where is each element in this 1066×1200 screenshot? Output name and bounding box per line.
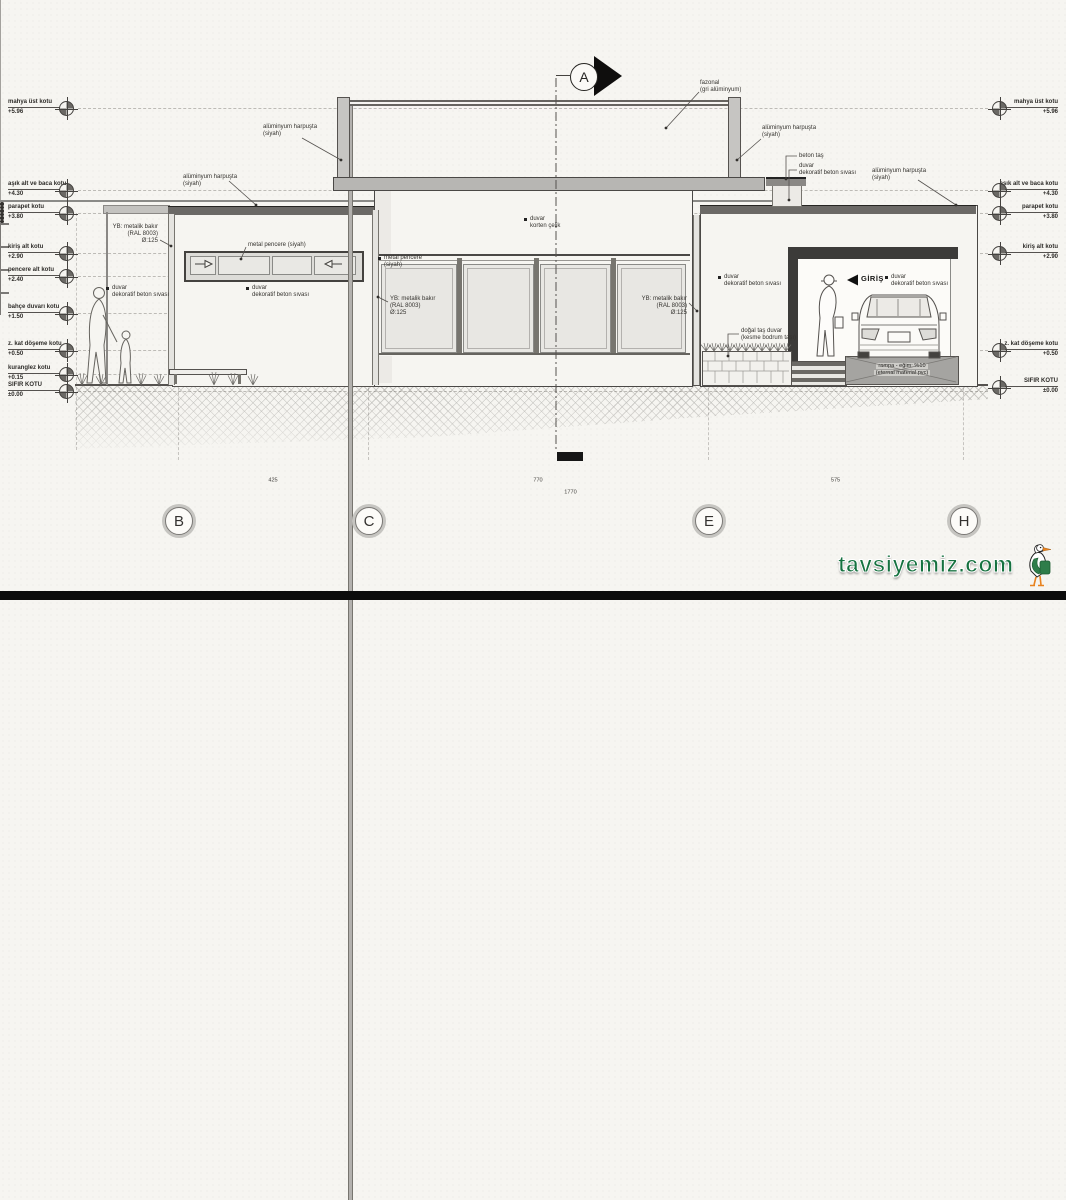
left-building-roof-band xyxy=(168,206,376,215)
annotation-label: duvardekoratif beton sıvası xyxy=(891,274,948,288)
level-value: +2.90 xyxy=(1043,254,1058,261)
level-label: aşık alt ve baca kotu xyxy=(1000,181,1058,188)
level-symbol-icon xyxy=(992,246,1007,261)
railing-baluster xyxy=(348,874,353,938)
grid-bubble: H xyxy=(950,507,978,535)
window-sill xyxy=(375,353,690,355)
level-marker: pencere alt kotu+2.40 xyxy=(8,267,120,287)
dim-extension-line xyxy=(0,0,1,50)
mullion xyxy=(534,258,539,354)
grid-bubble-label: C xyxy=(364,513,375,530)
person-child xyxy=(119,331,131,383)
grid-bubble-tick xyxy=(0,248,1,259)
level-label: parapet kotu xyxy=(8,204,44,211)
level-symbol-icon xyxy=(992,380,1007,395)
level-symbol-icon xyxy=(59,384,74,399)
level-label: pencere alt kotu xyxy=(8,267,54,274)
dim-text: 575 xyxy=(829,478,842,484)
railing-baluster xyxy=(348,1066,353,1130)
bench-seat xyxy=(169,369,247,375)
window-pane xyxy=(272,256,312,275)
bullet-icon xyxy=(378,257,381,260)
dim-tick-dot xyxy=(0,209,4,213)
level-value: +3.80 xyxy=(8,214,23,221)
dim-extension-line xyxy=(0,150,1,200)
level-marker: z. kat döşeme kotu+0.50 xyxy=(8,341,120,361)
chimney-cap xyxy=(766,177,806,186)
bullet-icon xyxy=(106,287,109,290)
bottom-bar xyxy=(0,591,1066,600)
level-line xyxy=(1005,386,1058,387)
dim-tick-dot xyxy=(0,202,4,206)
annotation-label: alüminyum harpuşta(siyah) xyxy=(762,125,816,139)
level-marker: aşık alt ve baca kotu+4.30 xyxy=(946,181,1058,201)
level-marker: z. kat döşeme kotu+0.50 xyxy=(946,341,1058,361)
level-symbol-icon xyxy=(59,269,74,284)
level-line xyxy=(1005,212,1058,213)
level-line xyxy=(8,373,60,374)
level-marker: kiriş alt kotu+2.90 xyxy=(8,244,120,264)
stone-wall xyxy=(702,351,792,386)
mullion xyxy=(457,258,462,354)
grid-bubble-tick xyxy=(0,259,1,269)
level-line xyxy=(8,252,60,253)
level-value: +4.30 xyxy=(1043,191,1058,198)
annotation-label: alüminyum harpuşta(siyah) xyxy=(183,174,237,188)
grid-bubble-tick xyxy=(0,271,1,282)
ramp-label: rampa - eğim: %10 (eternal material pvc) xyxy=(846,363,958,377)
level-value: +4.30 xyxy=(8,191,23,198)
annotation-label: YB: metalik bakır(RAL 8003)Ø:125 xyxy=(642,296,687,317)
level-line xyxy=(8,390,60,391)
left-downpipe xyxy=(168,214,175,385)
level-symbol-icon xyxy=(992,343,1007,358)
railing-baluster xyxy=(348,1194,353,1200)
level-label: SIFIR KOTU xyxy=(8,382,42,389)
grid-bubble-label: E xyxy=(704,513,714,530)
glass-pane xyxy=(463,264,534,353)
annotation-label: duvardekoratif beton sıvası xyxy=(252,285,309,299)
railing-baluster xyxy=(348,1002,353,1066)
level-symbol-icon xyxy=(59,206,74,221)
annotation-label: fazonal(gri alüminyum) xyxy=(700,80,741,94)
window-pane xyxy=(218,256,270,275)
railing-baluster xyxy=(348,746,353,810)
drawing-sheet: GİRİŞ rampa - eğim: %10 (eternal materia… xyxy=(0,0,1066,600)
railing-baluster xyxy=(348,426,353,490)
level-value: +2.90 xyxy=(8,254,23,261)
level-label: SIFIR KOTU xyxy=(1024,378,1058,385)
level-line xyxy=(1005,252,1058,253)
grid-bubble-label: B xyxy=(174,513,184,530)
section-arrow-icon xyxy=(594,56,622,96)
bullet-icon xyxy=(524,218,527,221)
window-pane xyxy=(190,256,216,275)
bench-leg xyxy=(174,374,177,384)
mullion xyxy=(611,258,616,354)
railing-baluster xyxy=(348,938,353,1002)
level-symbol-icon xyxy=(992,183,1007,198)
garage-entry-label: GİRİŞ xyxy=(861,274,884,283)
railing-balusters xyxy=(348,106,728,170)
dim-tick-dot xyxy=(0,216,4,220)
annotation-label: duvardekoratif beton sıvası xyxy=(724,274,781,288)
level-value: ±0.00 xyxy=(8,392,23,399)
level-value: +3.80 xyxy=(1043,214,1058,221)
dim-text: 770 xyxy=(531,478,544,484)
level-label: parapet kotu xyxy=(1022,204,1058,211)
level-value: +1.50 xyxy=(8,314,23,321)
level-symbol-icon xyxy=(59,246,74,261)
garage-ramp: rampa - eğim: %10 (eternal material pvc) xyxy=(845,356,959,385)
annotation-label: metal pencere(siyah) xyxy=(384,255,422,269)
grid-bubble-label: H xyxy=(959,513,970,530)
level-label: aşık alt ve baca kotu xyxy=(8,181,66,188)
chimney-body xyxy=(772,184,802,207)
railing-baluster xyxy=(348,810,353,874)
level-line xyxy=(1005,349,1058,350)
level-value: +2.40 xyxy=(8,277,23,284)
railing-baluster xyxy=(348,490,353,554)
railing-baluster xyxy=(348,1130,353,1194)
railing-baluster xyxy=(348,682,353,746)
dim-extension-line xyxy=(0,100,1,150)
grid-bubble-tick xyxy=(0,305,1,315)
level-label: kuranglez kotu xyxy=(8,365,50,372)
level-marker: kiriş alt kotu+2.90 xyxy=(946,244,1058,264)
dim-text: 425 xyxy=(266,478,279,484)
level-marker: SIFIR KOTU±0.00 xyxy=(946,378,1058,398)
level-value: ±0.00 xyxy=(1043,388,1058,395)
grid-bubble: B xyxy=(165,507,193,535)
grid-bubble-tick xyxy=(0,293,9,294)
bullet-icon xyxy=(885,276,888,279)
garage-header xyxy=(788,247,958,259)
section-cut-mark xyxy=(557,452,583,461)
level-marker: parapet kotu+3.80 xyxy=(8,204,120,224)
annotation-label: YB: metalik bakır(RAL 8003)Ø:125 xyxy=(113,224,158,245)
annotation-label: metal pencere (siyah) xyxy=(248,242,306,249)
level-line xyxy=(1005,189,1058,190)
bullet-icon xyxy=(718,276,721,279)
level-symbol-icon xyxy=(992,206,1007,221)
railing-baluster xyxy=(348,234,353,298)
grid-bubble-tick xyxy=(0,282,1,292)
grid-bubble-tick xyxy=(0,294,1,305)
level-value: +5.96 xyxy=(1043,109,1058,116)
grid-bubble-tick xyxy=(0,225,1,236)
grid-bubble-tick xyxy=(0,224,9,225)
level-line xyxy=(8,275,60,276)
railing-baluster xyxy=(348,618,353,682)
right-building-roof-band xyxy=(700,205,976,214)
level-line xyxy=(1005,107,1058,108)
level-value: +0.15 xyxy=(8,375,23,382)
annotation-label: YB: metalik bakır(RAL 8003)Ø:125 xyxy=(390,296,435,317)
watermark: tavsiyemiz.com xyxy=(838,551,1014,578)
grid-bubble: E xyxy=(695,507,723,535)
entry-steps xyxy=(789,361,847,386)
railing-baluster xyxy=(348,554,353,618)
level-value: +0.50 xyxy=(1043,351,1058,358)
level-label: z. kat döşeme kotu xyxy=(8,341,62,348)
level-label: kiriş alt kotu xyxy=(8,244,43,251)
annotation-label: duvarkorten çelik xyxy=(530,216,560,230)
level-symbol-icon xyxy=(59,343,74,358)
level-line xyxy=(8,212,60,213)
watermark-text: tavsiyemiz.com xyxy=(838,551,1014,577)
glass-frame-line xyxy=(375,260,690,261)
section-line-horizontal xyxy=(556,75,570,76)
level-marker: aşık alt ve baca kotu+4.30 xyxy=(8,181,120,201)
level-marker: SIFIR KOTU±0.00 xyxy=(8,382,120,402)
garage-jamb-left xyxy=(788,247,798,362)
section-letter: A xyxy=(579,69,588,85)
dim-extension-line xyxy=(0,50,1,100)
railing-baluster xyxy=(348,298,353,362)
level-symbol-icon xyxy=(992,101,1007,116)
level-value: +0.50 xyxy=(8,351,23,358)
annotation-label: duvardekoratif beton sıvası xyxy=(799,163,856,177)
level-line xyxy=(8,189,60,190)
railing-base-band xyxy=(333,177,765,191)
stork-mascot-icon xyxy=(1016,543,1056,589)
base-stripe-band xyxy=(375,356,690,383)
center-downpipe-left xyxy=(372,210,379,385)
level-symbol-icon xyxy=(59,101,74,116)
level-label: bahçe duvarı kotu xyxy=(8,304,59,311)
entry-text: GİRİŞ xyxy=(861,274,884,283)
level-label: mahya üst kotu xyxy=(1014,99,1058,106)
level-label: z. kat döşeme kotu xyxy=(1004,341,1058,348)
center-downpipe-right xyxy=(693,215,700,385)
level-value: +5.96 xyxy=(8,109,23,116)
grid-bubble-tick xyxy=(0,236,1,246)
level-marker: mahya üst kotu+5.96 xyxy=(8,99,120,119)
level-label: kiriş alt kotu xyxy=(1023,244,1058,251)
grid-bubble: C xyxy=(355,507,383,535)
level-symbol-icon xyxy=(59,306,74,321)
annotation-label: duvardekoratif beton sıvası xyxy=(112,285,169,299)
level-marker: bahçe duvarı kotu+1.50 xyxy=(8,304,120,324)
annotation-label: alüminyum harpuşta(siyah) xyxy=(263,124,317,138)
railing-top-rail xyxy=(348,100,728,102)
railing-baluster xyxy=(348,362,353,426)
bench-leg xyxy=(238,374,241,384)
annotation-label: alüminyum harpuşta(siyah) xyxy=(872,168,926,182)
left-building-wall xyxy=(172,213,377,387)
annotation-label: doğal taş duvar(kesme bodrum taşı) xyxy=(741,328,796,342)
bullet-icon xyxy=(246,287,249,290)
section-marker-circle: A xyxy=(570,63,598,91)
level-label: mahya üst kotu xyxy=(8,99,52,106)
level-line xyxy=(8,312,60,313)
level-marker: parapet kotu+3.80 xyxy=(946,204,1058,224)
level-line xyxy=(8,349,60,350)
dim-total-text: 1770 xyxy=(562,490,578,496)
level-line xyxy=(8,107,60,108)
annotation-label: beton taş xyxy=(799,153,824,160)
level-symbol-icon xyxy=(59,183,74,198)
glass-pane xyxy=(540,264,611,353)
level-marker: mahya üst kotu+5.96 xyxy=(946,99,1058,119)
